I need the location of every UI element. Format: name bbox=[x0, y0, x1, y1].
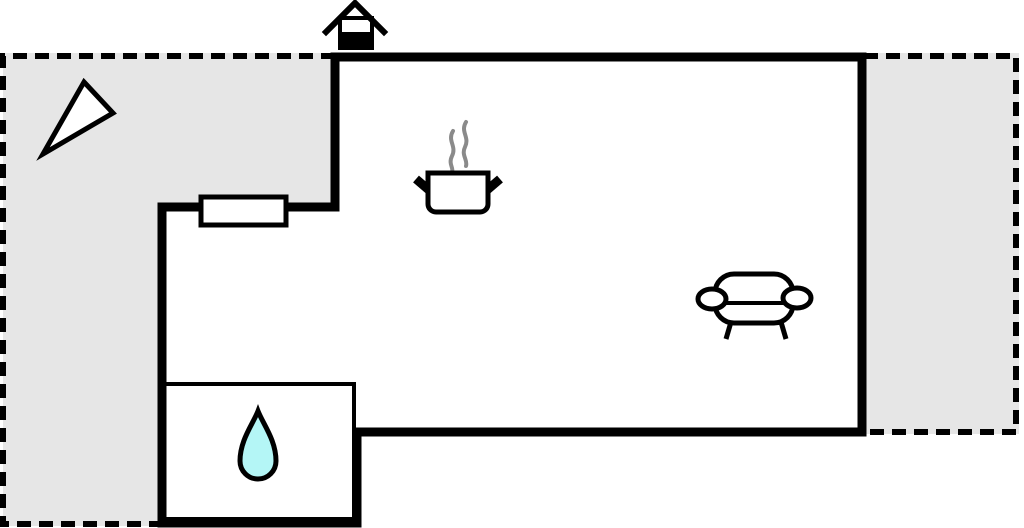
floor-plan-page bbox=[0, 0, 1024, 528]
window-icon bbox=[201, 197, 286, 225]
terrace-right-area bbox=[864, 53, 1019, 434]
pot-body bbox=[428, 173, 488, 212]
sofa-armrest-left bbox=[698, 289, 726, 309]
floor-plan bbox=[0, 0, 1024, 528]
sofa-armrest-right bbox=[783, 288, 811, 308]
chimney-body-solid bbox=[340, 32, 372, 48]
